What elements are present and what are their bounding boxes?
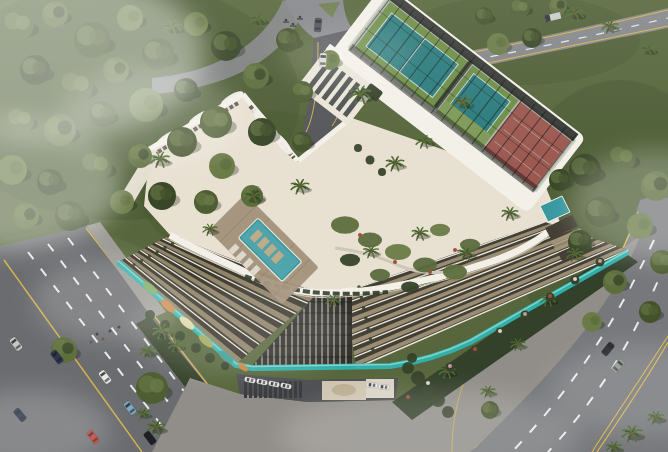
render-scene	[0, 0, 668, 452]
fog-patch	[60, 68, 240, 168]
aerial-render-image: Hazy aerial 3D architectural render of a…	[0, 0, 668, 452]
fog-patch	[280, 25, 410, 85]
fog-patch	[33, 258, 183, 342]
